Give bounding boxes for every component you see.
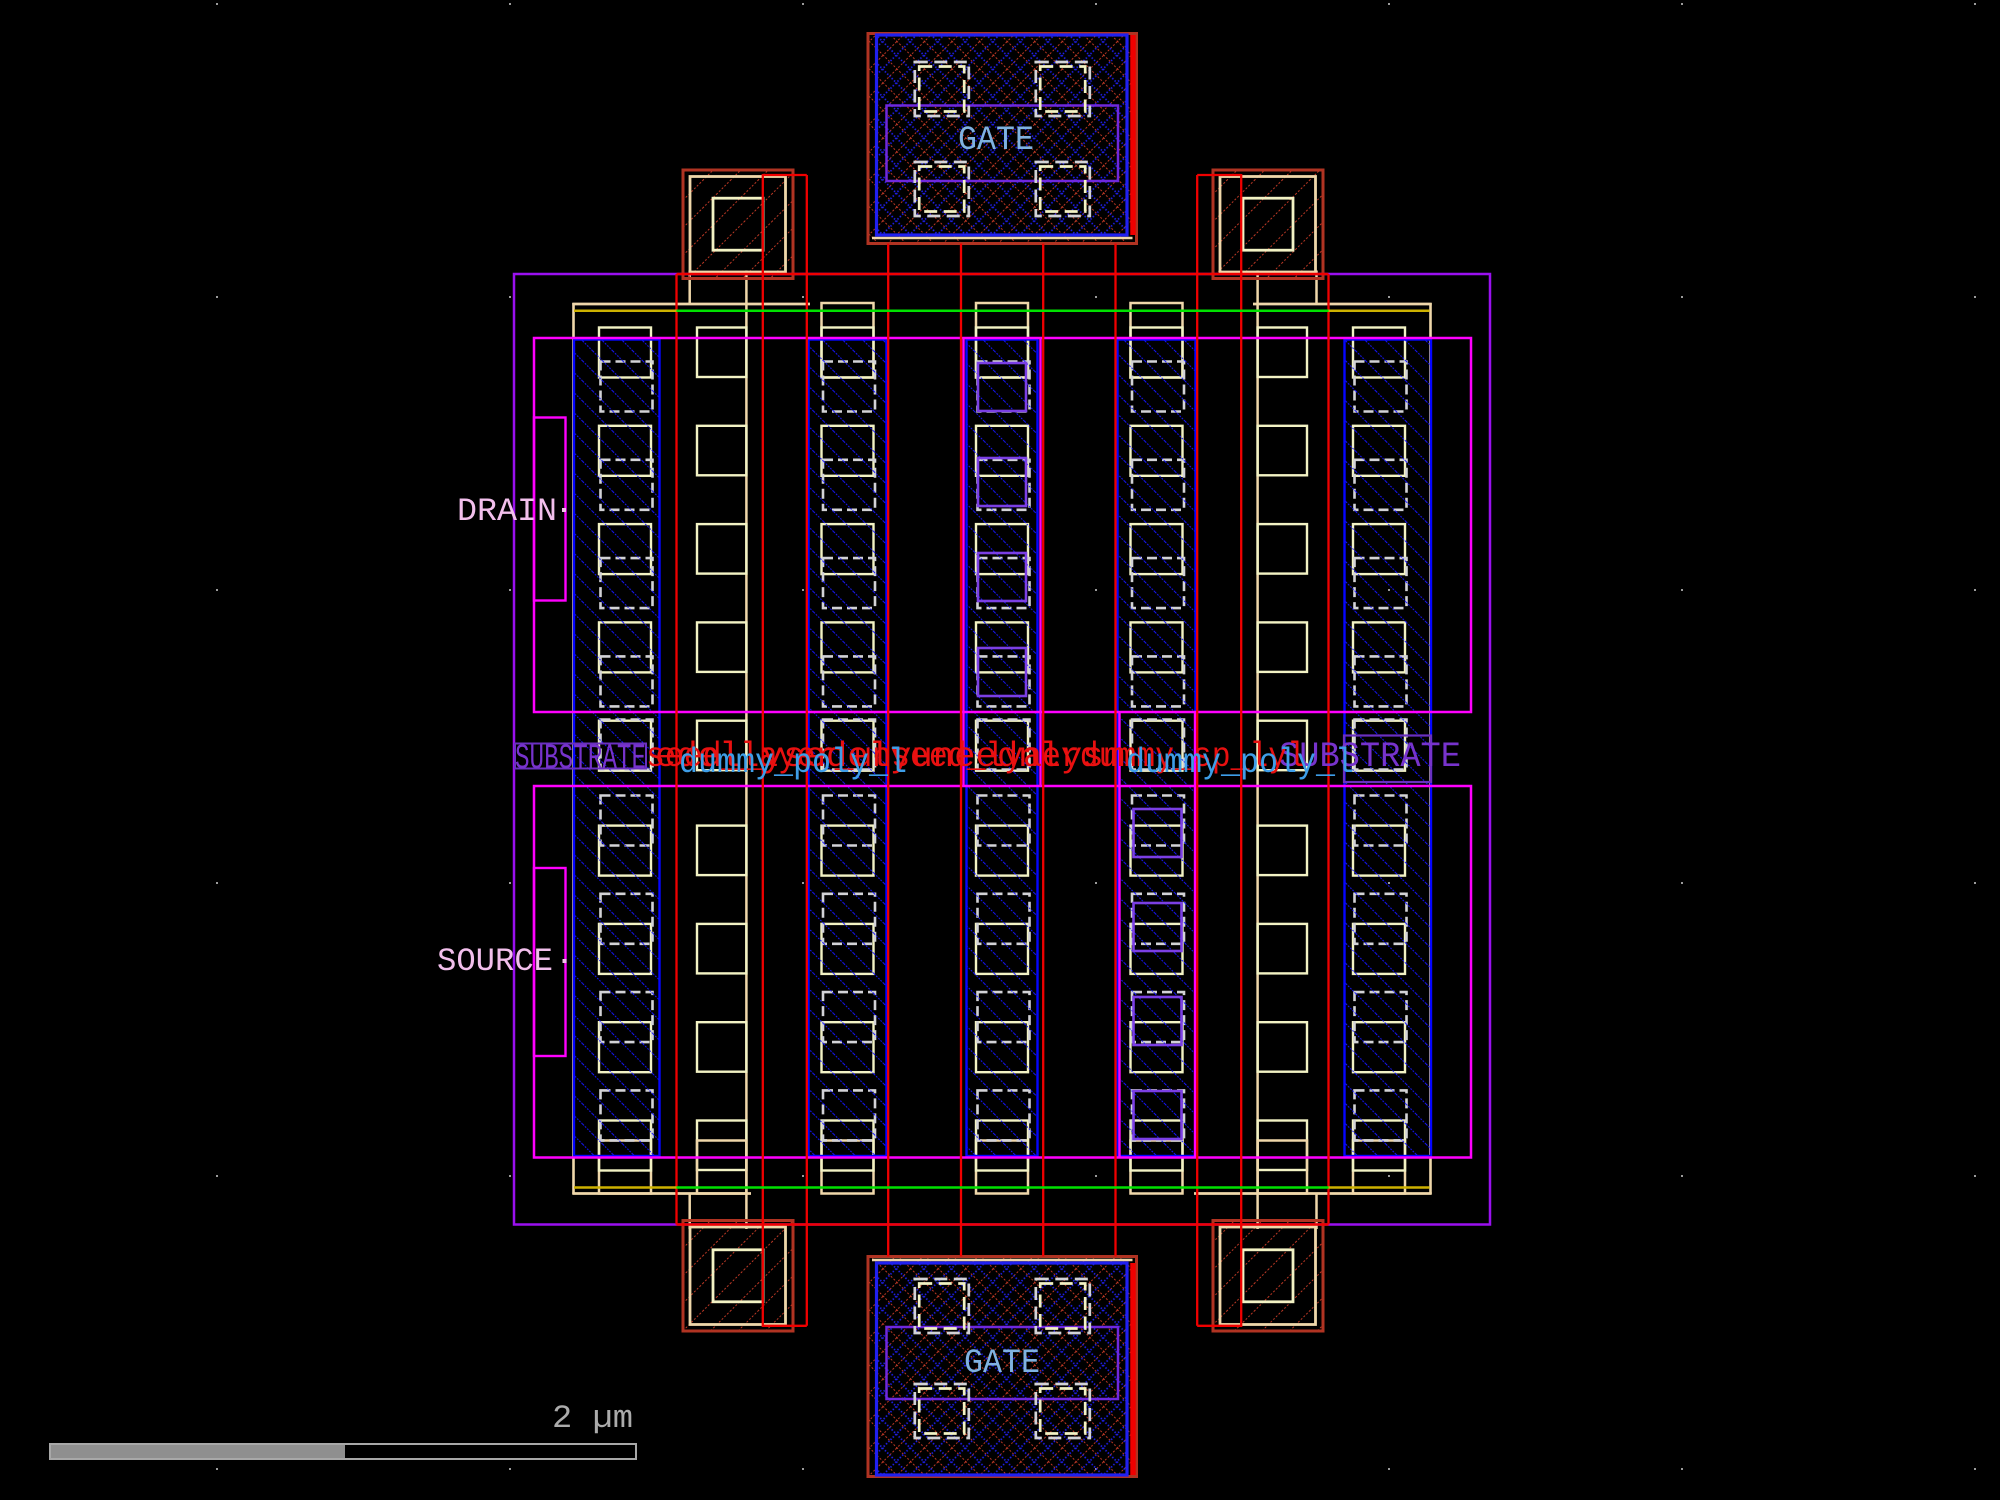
svg-text:GATE: GATE xyxy=(958,122,1034,160)
svg-text:dummy_poly_l: dummy_poly_l xyxy=(1126,743,1354,783)
svg-text:2 µm: 2 µm xyxy=(552,1400,633,1437)
svg-text:SOURCE: SOURCE xyxy=(437,943,553,980)
svg-text:dummy_poly_l: dummy_poly_l xyxy=(679,743,907,783)
svg-text:GATE: GATE xyxy=(964,1345,1040,1383)
svg-text:DRAIN: DRAIN xyxy=(457,493,557,530)
svg-text:SUBSTRATE: SUBSTRATE xyxy=(515,739,646,779)
